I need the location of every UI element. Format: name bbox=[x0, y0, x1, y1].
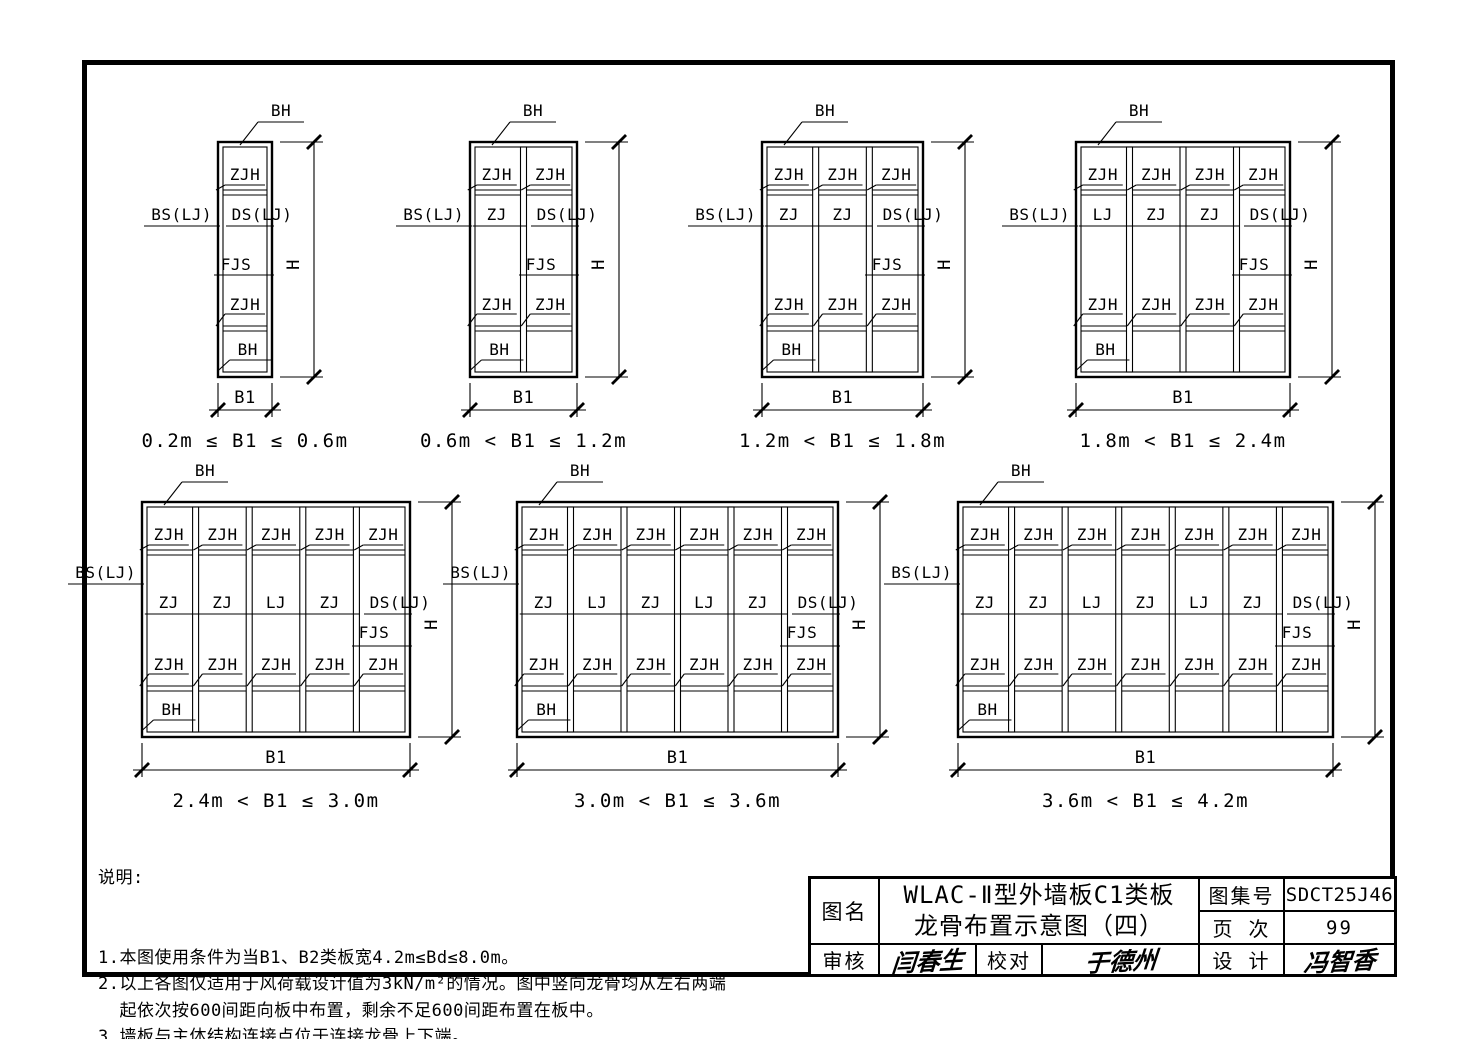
dimension-b1: B1 bbox=[234, 388, 255, 408]
vertical-stud bbox=[300, 507, 306, 732]
label-zjh: ZJH bbox=[535, 295, 565, 314]
vertical-stud bbox=[1127, 147, 1133, 372]
dimension-b1: B1 bbox=[265, 748, 286, 768]
atlas-number-value: SDCT25J46 bbox=[1285, 879, 1394, 912]
label-bh-bottom: BH bbox=[238, 340, 258, 359]
vertical-stud bbox=[1116, 507, 1122, 732]
label-bh-bottom: BH bbox=[781, 340, 801, 359]
diagram-caption: 2.4m < B1 ≤ 3.0m bbox=[172, 790, 379, 812]
label-stud: ZJ bbox=[641, 593, 661, 612]
label-fjs: FJS bbox=[1239, 255, 1269, 274]
label-zjh: ZJH bbox=[827, 165, 857, 184]
drawing-title-line2: 龙骨布置示意图（四） bbox=[914, 911, 1164, 942]
keel-diagram-2: BHZJHZJHZJHZJHBHBS(LJ)ZJDS(LJ)FJSHB10.6m… bbox=[392, 94, 657, 471]
label-stud: ZJ bbox=[1146, 205, 1166, 224]
vertical-stud bbox=[675, 507, 681, 732]
label-zjh: ZJH bbox=[827, 295, 857, 314]
dimension-h: H bbox=[935, 259, 955, 270]
page-number-value: 99 bbox=[1285, 912, 1394, 945]
label-bh-bottom: BH bbox=[1095, 340, 1115, 359]
label-zjh: ZJH bbox=[1291, 525, 1321, 544]
label-zjh: ZJH bbox=[261, 655, 291, 674]
keel-diagram-3: BHZJHZJHZJHZJHZJHZJHBHBS(LJ)ZJZJDS(LJ)FJ… bbox=[684, 94, 1003, 471]
label-zjh: ZJH bbox=[535, 165, 565, 184]
review-label: 审核 bbox=[811, 945, 880, 974]
vertical-stud bbox=[1180, 147, 1186, 372]
label-bs-lj: BS(LJ) bbox=[450, 563, 511, 582]
label-zjh: ZJH bbox=[1088, 295, 1118, 314]
label-bs-lj: BS(LJ) bbox=[891, 563, 952, 582]
keel-diagram-svg: BHZJHZJHZJHZJHZJHZJHZJHZJHZJHZJHZJHZJHBH… bbox=[439, 454, 918, 827]
label-zjh: ZJH bbox=[1023, 655, 1053, 674]
label-ds-lj: DS(LJ) bbox=[798, 593, 859, 612]
label-bh-top: BH bbox=[195, 461, 215, 480]
label-zjh: ZJH bbox=[1141, 165, 1171, 184]
note-line: 3.墙板与主体结构连接点位于连接龙骨上下端。 bbox=[98, 1024, 822, 1039]
label-zjh: ZJH bbox=[207, 655, 237, 674]
label-stud: ZJ bbox=[1028, 593, 1048, 612]
page-number-label: 页 次 bbox=[1200, 912, 1285, 945]
label-zjh: ZJH bbox=[1195, 165, 1225, 184]
keel-diagram-6: BHZJHZJHZJHZJHZJHZJHZJHZJHZJHZJHZJHZJHBH… bbox=[439, 454, 918, 831]
label-zjh: ZJH bbox=[743, 525, 773, 544]
label-zjh: ZJH bbox=[774, 165, 804, 184]
label-stud: ZJ bbox=[159, 593, 179, 612]
label-ds-lj: DS(LJ) bbox=[883, 205, 944, 224]
proofread-label: 校对 bbox=[977, 945, 1043, 974]
vertical-stud bbox=[1169, 507, 1175, 732]
vertical-stud bbox=[353, 507, 359, 732]
label-stud: LJ bbox=[266, 593, 286, 612]
vertical-stud bbox=[246, 507, 252, 732]
label-zjh: ZJH bbox=[154, 655, 184, 674]
label-bh-top: BH bbox=[523, 101, 543, 120]
label-zjh: ZJH bbox=[1077, 525, 1107, 544]
label-zjh: ZJH bbox=[1248, 165, 1278, 184]
label-stud: ZJ bbox=[779, 205, 799, 224]
label-zjh: ZJH bbox=[368, 655, 398, 674]
label-bh-bottom: BH bbox=[489, 340, 509, 359]
label-zjh: ZJH bbox=[582, 655, 612, 674]
drawing-title-line1: WLAC-Ⅱ型外墙板C1类板 bbox=[904, 880, 1175, 911]
label-zjh: ZJH bbox=[314, 525, 344, 544]
title-block: 图名 WLAC-Ⅱ型外墙板C1类板 龙骨布置示意图（四） 图集号 SDCT25J… bbox=[808, 876, 1397, 977]
vertical-stud bbox=[813, 147, 819, 372]
label-zjh: ZJH bbox=[774, 295, 804, 314]
notes-lines: 1.本图使用条件为当B1、B2类板宽4.2m≤Bd≤8.0m。2.以上各图仅适用… bbox=[98, 945, 822, 1039]
label-zjh: ZJH bbox=[1184, 655, 1214, 674]
label-bh-top: BH bbox=[1011, 461, 1031, 480]
label-zjh: ZJH bbox=[1130, 525, 1160, 544]
label-stud: LJ bbox=[1093, 205, 1113, 224]
label-zjh: ZJH bbox=[970, 525, 1000, 544]
label-bs-lj: BS(LJ) bbox=[403, 205, 464, 224]
label-zjh: ZJH bbox=[1291, 655, 1321, 674]
label-fjs: FJS bbox=[359, 623, 389, 642]
label-stud: ZJ bbox=[212, 593, 232, 612]
keel-diagram-svg: BHZJHZJHZJHZJHBHBS(LJ)ZJDS(LJ)FJSHB10.6m… bbox=[392, 94, 657, 467]
label-ds-lj: DS(LJ) bbox=[232, 205, 293, 224]
label-bh-top: BH bbox=[271, 101, 291, 120]
label-zjh: ZJH bbox=[482, 295, 512, 314]
vertical-stud bbox=[1276, 507, 1282, 732]
label-bs-lj: BS(LJ) bbox=[151, 205, 212, 224]
label-bh-top: BH bbox=[815, 101, 835, 120]
keel-diagram-svg: BHZJHZJHZJHZJHZJHZJHZJHZJHZJHZJHBHBS(LJ)… bbox=[64, 454, 490, 827]
proofread-signature: 于德州 bbox=[1043, 945, 1200, 974]
dimension-h: H bbox=[1302, 259, 1322, 270]
label-ds-lj: DS(LJ) bbox=[1250, 205, 1311, 224]
label-zjh: ZJH bbox=[230, 165, 260, 184]
label-fjs: FJS bbox=[872, 255, 902, 274]
label-zjh: ZJH bbox=[796, 655, 826, 674]
diagram-caption: 1.2m < B1 ≤ 1.8m bbox=[739, 430, 946, 452]
note-line: 2.以上各图仅适用于风荷载设计值为3kN/m²的情况。图中竖向龙骨均从左右两端 bbox=[98, 971, 822, 998]
label-zjh: ZJH bbox=[1141, 295, 1171, 314]
diagram-caption: 0.6m < B1 ≤ 1.2m bbox=[420, 430, 627, 452]
label-zjh: ZJH bbox=[314, 655, 344, 674]
review-signature: 闫春生 bbox=[880, 945, 977, 974]
dimension-h: H bbox=[850, 619, 870, 630]
label-zjh: ZJH bbox=[529, 655, 559, 674]
label-zjh: ZJH bbox=[636, 525, 666, 544]
label-bh-top: BH bbox=[1129, 101, 1149, 120]
label-zjh: ZJH bbox=[796, 525, 826, 544]
label-zjh: ZJH bbox=[743, 655, 773, 674]
label-zjh: ZJH bbox=[1237, 655, 1267, 674]
label-zjh: ZJH bbox=[689, 655, 719, 674]
label-fjs: FJS bbox=[787, 623, 817, 642]
label-bh-bottom: BH bbox=[536, 700, 556, 719]
label-ds-lj: DS(LJ) bbox=[370, 593, 431, 612]
vertical-stud bbox=[1223, 507, 1229, 732]
label-stud: ZJ bbox=[832, 205, 852, 224]
label-stud: ZJ bbox=[534, 593, 554, 612]
label-stud: LJ bbox=[587, 593, 607, 612]
label-zjh: ZJH bbox=[970, 655, 1000, 674]
label-zjh: ZJH bbox=[154, 525, 184, 544]
design-label: 设 计 bbox=[1200, 945, 1285, 974]
label-stud: ZJ bbox=[1243, 593, 1263, 612]
notes-section: 说明: 1.本图使用条件为当B1、B2类板宽4.2m≤Bd≤8.0m。2.以上各… bbox=[98, 812, 822, 1039]
label-bh-top: BH bbox=[570, 461, 590, 480]
keel-diagram-1: BHZJHZJHBHBS(LJ)DS(LJ)FJSHB10.2m ≤ B1 ≤ … bbox=[140, 94, 352, 471]
label-ds-lj: DS(LJ) bbox=[1293, 593, 1354, 612]
vertical-stud bbox=[1009, 507, 1015, 732]
dimension-b1: B1 bbox=[513, 388, 534, 408]
label-fjs: FJS bbox=[1282, 623, 1312, 642]
note-line: 起依次按600间距向板中布置，剩余不足600间距布置在板中。 bbox=[98, 998, 822, 1025]
vertical-stud bbox=[621, 507, 627, 732]
label-zjh: ZJH bbox=[1077, 655, 1107, 674]
label-zjh: ZJH bbox=[1248, 295, 1278, 314]
label-bs-lj: BS(LJ) bbox=[1009, 205, 1070, 224]
label-zjh: ZJH bbox=[261, 525, 291, 544]
label-zjh: ZJH bbox=[230, 295, 260, 314]
vertical-stud bbox=[568, 507, 574, 732]
dimension-h: H bbox=[1345, 619, 1365, 630]
label-zjh: ZJH bbox=[368, 525, 398, 544]
diagram-caption: 3.0m < B1 ≤ 3.6m bbox=[574, 790, 781, 812]
label-zjh: ZJH bbox=[582, 525, 612, 544]
label-ds-lj: DS(LJ) bbox=[537, 205, 598, 224]
keel-diagram-svg: BHZJHZJHBHBS(LJ)DS(LJ)FJSHB10.2m ≤ B1 ≤ … bbox=[140, 94, 352, 467]
vertical-stud bbox=[782, 507, 788, 732]
label-fjs: FJS bbox=[526, 255, 556, 274]
label-zjh: ZJH bbox=[1184, 525, 1214, 544]
label-zjh: ZJH bbox=[881, 165, 911, 184]
dimension-b1: B1 bbox=[1172, 388, 1193, 408]
notes-title: 说明: bbox=[98, 865, 822, 892]
label-zjh: ZJH bbox=[1237, 525, 1267, 544]
keel-diagram-4: BHZJHZJHZJHZJHZJHZJHZJHZJHBHBS(LJ)LJZJZJ… bbox=[998, 94, 1370, 471]
note-line: 1.本图使用条件为当B1、B2类板宽4.2m≤Bd≤8.0m。 bbox=[98, 945, 822, 972]
label-zjh: ZJH bbox=[1195, 295, 1225, 314]
dimension-b1: B1 bbox=[832, 388, 853, 408]
label-stud: ZJ bbox=[975, 593, 995, 612]
dimension-b1: B1 bbox=[667, 748, 688, 768]
title-name-label: 图名 bbox=[811, 879, 880, 945]
dimension-b1: B1 bbox=[1135, 748, 1156, 768]
label-zjh: ZJH bbox=[482, 165, 512, 184]
label-bs-lj: BS(LJ) bbox=[75, 563, 136, 582]
label-fjs: FJS bbox=[221, 255, 251, 274]
label-stud: LJ bbox=[1189, 593, 1209, 612]
label-stud: LJ bbox=[694, 593, 714, 612]
label-stud: ZJ bbox=[1135, 593, 1155, 612]
label-bh-bottom: BH bbox=[161, 700, 181, 719]
label-zjh: ZJH bbox=[636, 655, 666, 674]
label-zjh: ZJH bbox=[1023, 525, 1053, 544]
drawing-sheet: BHZJHZJHBHBS(LJ)DS(LJ)FJSHB10.2m ≤ B1 ≤ … bbox=[0, 0, 1477, 1039]
label-zjh: ZJH bbox=[689, 525, 719, 544]
vertical-stud bbox=[193, 507, 199, 732]
design-signature: 冯智香 bbox=[1285, 945, 1394, 974]
label-zjh: ZJH bbox=[881, 295, 911, 314]
label-zjh: ZJH bbox=[1130, 655, 1160, 674]
vertical-stud bbox=[1062, 507, 1068, 732]
diagram-caption: 1.8m < B1 ≤ 2.4m bbox=[1079, 430, 1286, 452]
diagram-caption: 0.2m ≤ B1 ≤ 0.6m bbox=[141, 430, 348, 452]
label-zjh: ZJH bbox=[529, 525, 559, 544]
label-bs-lj: BS(LJ) bbox=[695, 205, 756, 224]
keel-diagram-7: BHZJHZJHZJHZJHZJHZJHZJHZJHZJHZJHZJHZJHZJ… bbox=[880, 454, 1413, 831]
label-stud: LJ bbox=[1082, 593, 1102, 612]
vertical-stud bbox=[728, 507, 734, 732]
dimension-h: H bbox=[589, 259, 609, 270]
atlas-number-label: 图集号 bbox=[1200, 879, 1285, 912]
keel-diagram-svg: BHZJHZJHZJHZJHZJHZJHZJHZJHBHBS(LJ)LJZJZJ… bbox=[998, 94, 1370, 467]
keel-diagram-svg: BHZJHZJHZJHZJHZJHZJHBHBS(LJ)ZJZJDS(LJ)FJ… bbox=[684, 94, 1003, 467]
label-stud: ZJ bbox=[319, 593, 339, 612]
label-zjh: ZJH bbox=[207, 525, 237, 544]
label-stud: ZJ bbox=[748, 593, 768, 612]
drawing-title: WLAC-Ⅱ型外墙板C1类板 龙骨布置示意图（四） bbox=[880, 879, 1200, 945]
label-stud: ZJ bbox=[487, 205, 507, 224]
label-zjh: ZJH bbox=[1088, 165, 1118, 184]
dimension-h: H bbox=[284, 259, 304, 270]
label-bh-bottom: BH bbox=[977, 700, 997, 719]
keel-diagram-5: BHZJHZJHZJHZJHZJHZJHZJHZJHZJHZJHBHBS(LJ)… bbox=[64, 454, 490, 831]
keel-diagram-svg: BHZJHZJHZJHZJHZJHZJHZJHZJHZJHZJHZJHZJHZJ… bbox=[880, 454, 1413, 827]
label-stud: ZJ bbox=[1200, 205, 1220, 224]
diagram-caption: 3.6m < B1 ≤ 4.2m bbox=[1042, 790, 1249, 812]
